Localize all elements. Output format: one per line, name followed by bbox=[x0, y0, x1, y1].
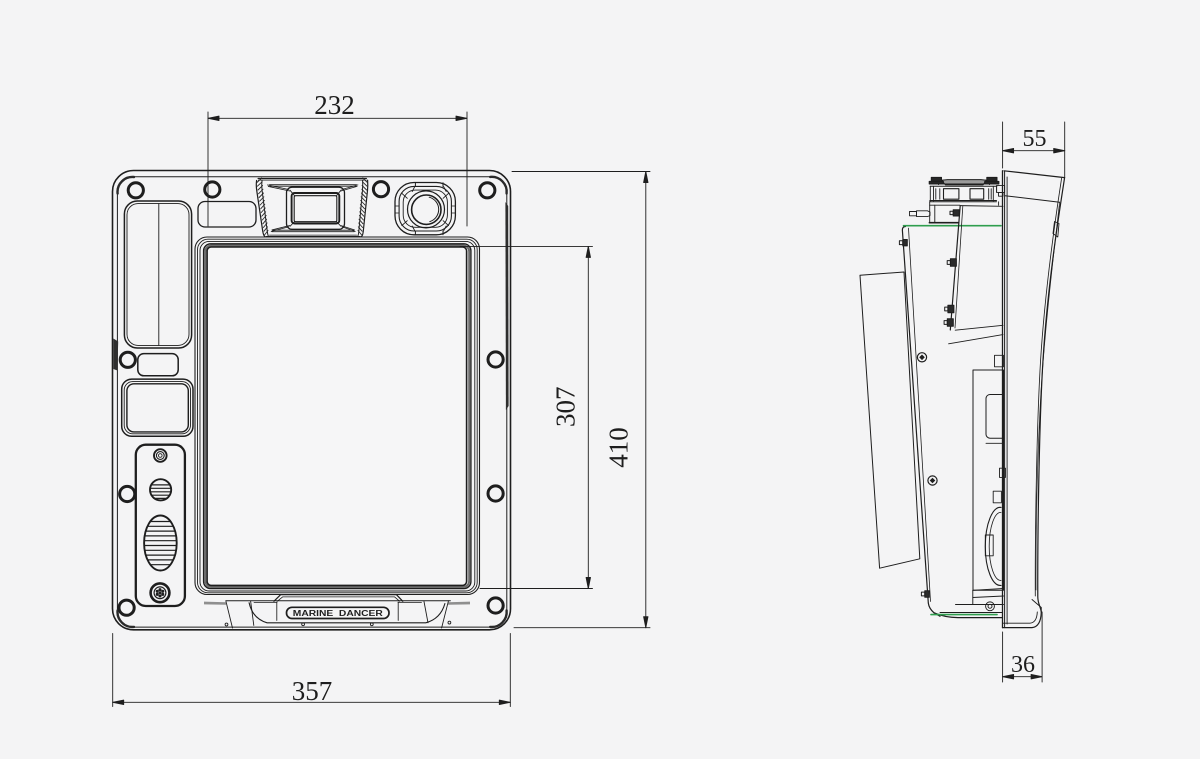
svg-text:307: 307 bbox=[551, 386, 581, 427]
svg-text:36: 36 bbox=[1011, 652, 1035, 678]
svg-text:232: 232 bbox=[314, 90, 355, 120]
svg-text:55: 55 bbox=[1023, 126, 1047, 152]
svg-text:MARINE DANCER: MARINE DANCER bbox=[293, 608, 384, 618]
svg-text:410: 410 bbox=[604, 427, 634, 468]
svg-text:357: 357 bbox=[292, 676, 333, 706]
